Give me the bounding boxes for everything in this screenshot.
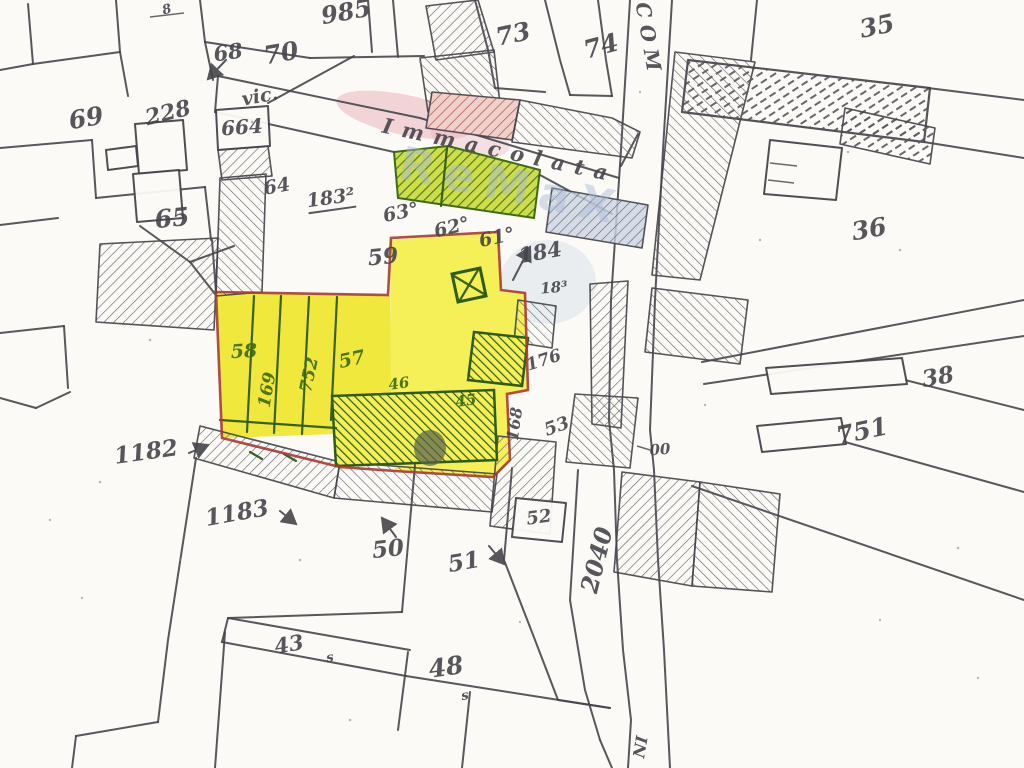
parcel-664-box [216,106,270,150]
cadastral-map: ReMaX 985868707374COM3569228664vic.Immac… [0,0,1024,768]
e-shaped-building [764,140,842,200]
cadastral-map-svg [0,0,1024,768]
parcel-52-box [512,498,566,542]
scan-smudge [414,430,446,466]
